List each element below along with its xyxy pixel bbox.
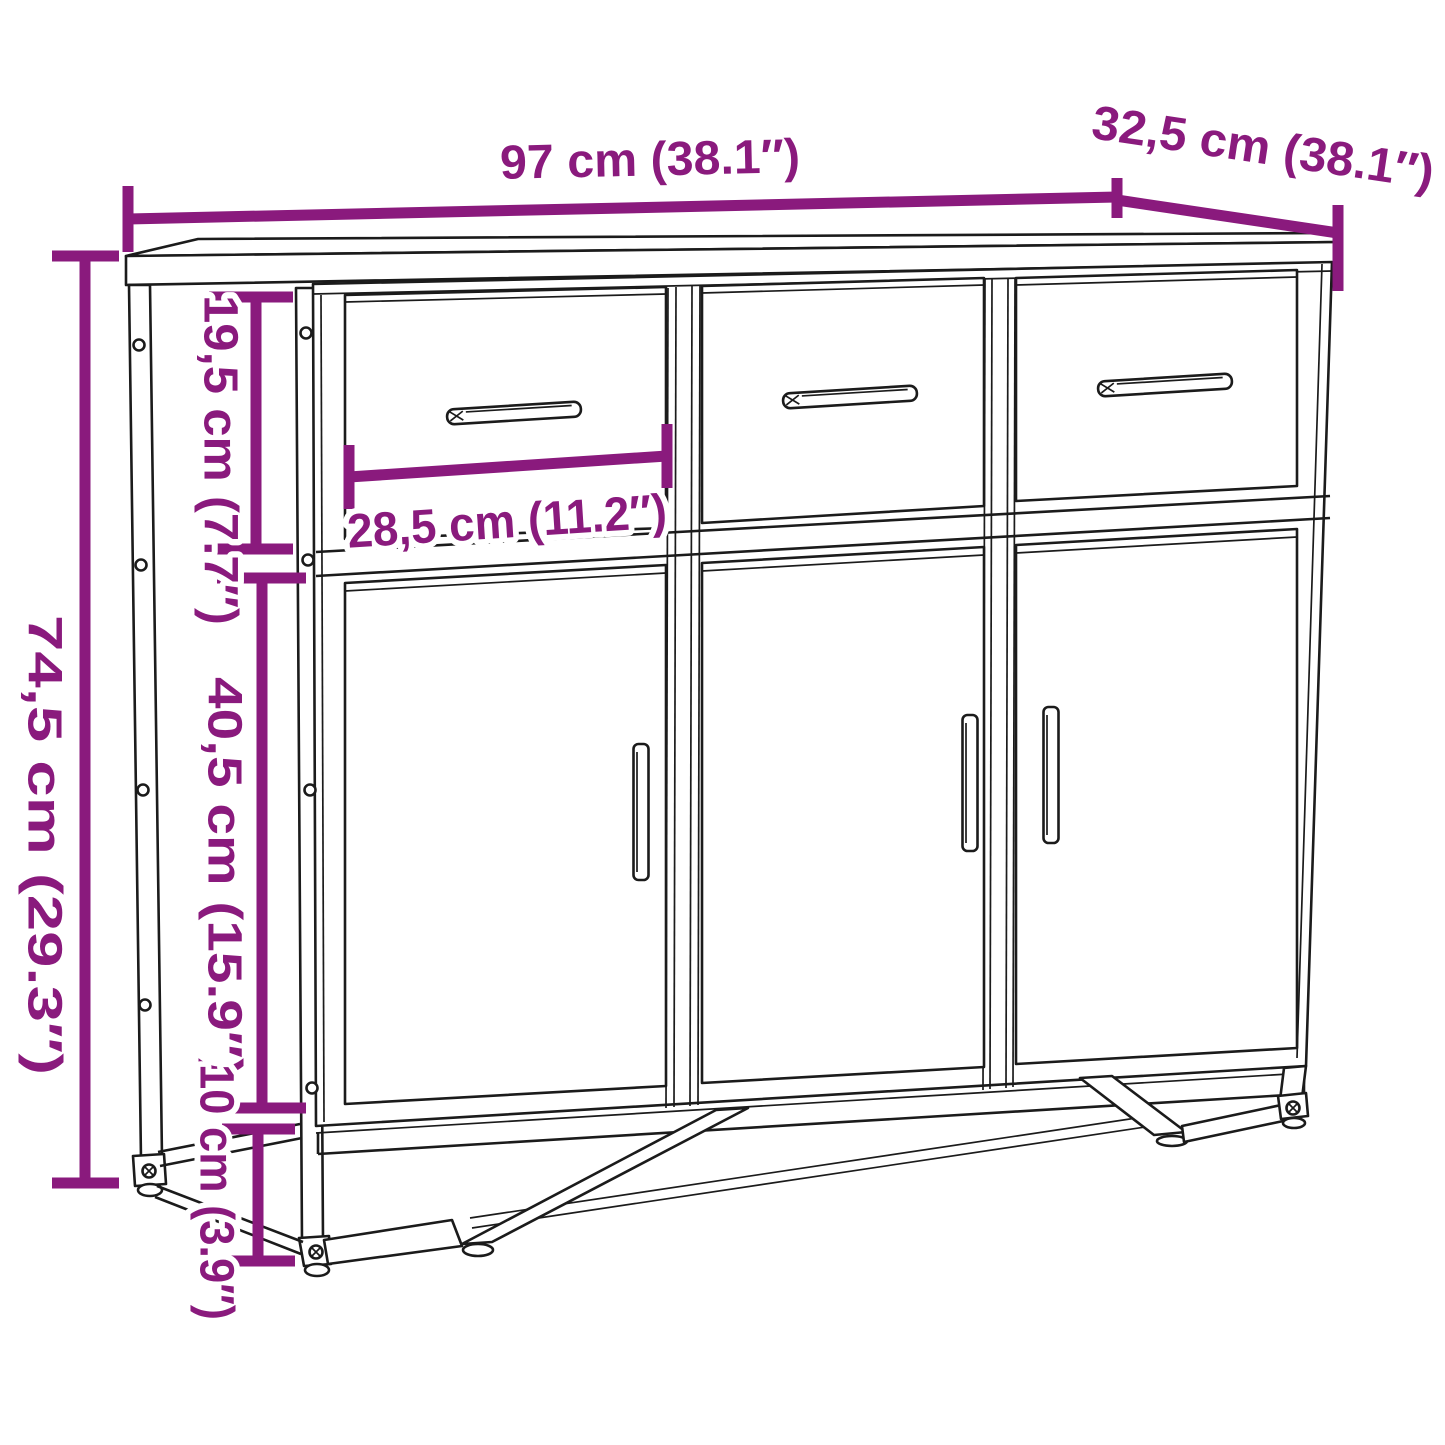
left-back-post <box>129 285 162 1160</box>
dim-height-label: 74,5 cm (29.3″) <box>18 615 71 1075</box>
right-foot-pad <box>1283 1118 1305 1128</box>
base-back-bar <box>470 1116 1152 1228</box>
dim-depth-line <box>1117 200 1338 233</box>
dim-depth-label: 32,5 cm (38.1″) <box>1088 96 1437 199</box>
left-leg-strut <box>462 1108 748 1244</box>
dimension-diagram: 97 cm (38.1″) 32,5 cm (38.1″) 74,5 cm (2… <box>0 0 1445 1445</box>
diagram-canvas: 97 cm (38.1″) 32,5 cm (38.1″) 74,5 cm (2… <box>0 0 1445 1445</box>
dim-width-label: 97 cm (38.1″) <box>499 130 800 190</box>
left-strut-foot-pad <box>463 1244 493 1256</box>
door-2-handle <box>963 715 978 851</box>
dim-width-line <box>128 197 1117 219</box>
sideboard-drawing <box>126 233 1338 1276</box>
door-1-handle <box>634 744 649 880</box>
left-front-foot-pad <box>305 1264 329 1276</box>
door-1 <box>345 565 666 1104</box>
dim-door-height-label: 40,5 cm (15.9″) <box>198 677 251 1077</box>
dim-leg-height-label: 10 cm (3.9″) <box>190 1064 243 1320</box>
door-3-handle <box>1044 707 1059 843</box>
left-floor-bar <box>324 1220 462 1264</box>
dim-drawer-height-label: 19,5 cm (7.7″) <box>194 295 247 625</box>
right-floor-bar <box>1182 1104 1288 1142</box>
door-2 <box>702 547 984 1083</box>
